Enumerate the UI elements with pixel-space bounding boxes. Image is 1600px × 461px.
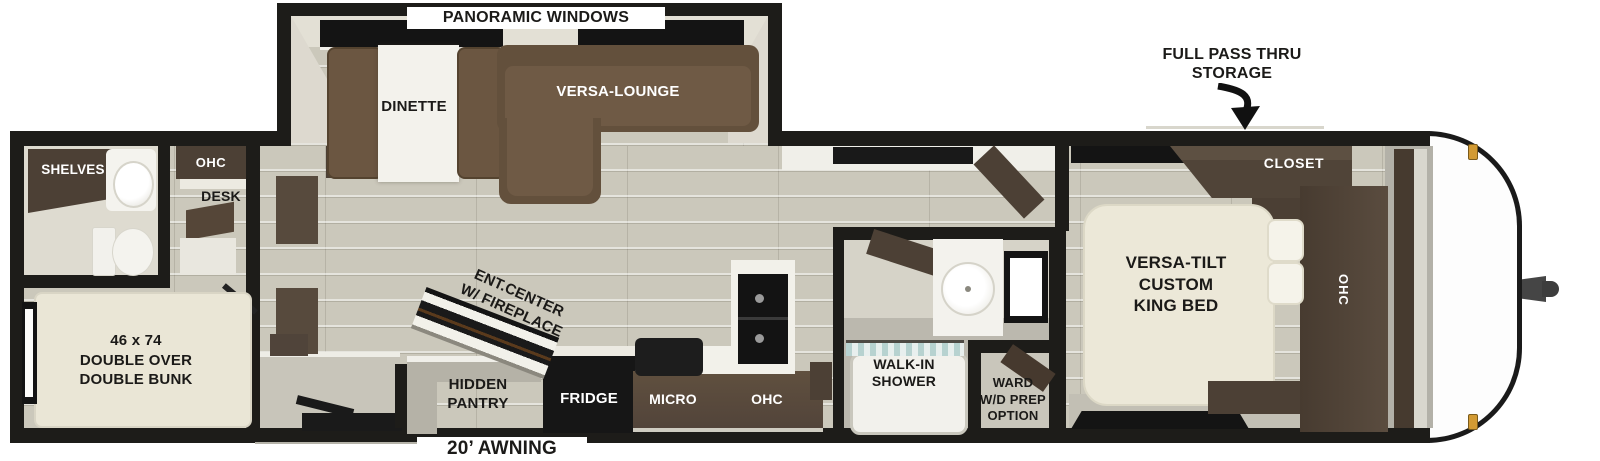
- marker-light-top: [1468, 144, 1478, 160]
- rear-bath-right-wall: [158, 131, 170, 287]
- versa-lounge-label: VERSA-LOUNGE: [542, 83, 694, 102]
- front-cap: [1424, 131, 1522, 443]
- kitchen-side-cabinet: [810, 362, 832, 400]
- pass-thru-inner-strip: [1414, 149, 1427, 428]
- sink-drain: [965, 286, 971, 292]
- shower-glass: [846, 340, 964, 356]
- micro-label: MICRO: [628, 391, 718, 409]
- versa-lounge-chaise-seat: [507, 118, 593, 196]
- burner-knob-1: [755, 294, 764, 303]
- bedroom-ohc-label-wrap: OHC: [1322, 268, 1366, 312]
- awning-label: 20’ AWNING: [417, 437, 587, 461]
- bunk-window-glass: [25, 309, 33, 397]
- bathroom-sink: [941, 262, 995, 316]
- bedroom-divider-upper: [1055, 131, 1069, 231]
- cooktop: [738, 274, 788, 364]
- bedroom-ohc-label: OHC: [1337, 274, 1352, 306]
- dinette-label: DINETTE: [366, 98, 462, 117]
- wall-cabinet-1: [276, 176, 318, 244]
- pantry-wall-black: [395, 364, 407, 428]
- ward-label: WARD W/D PREP OPTION: [972, 375, 1054, 425]
- shelves-label: SHELVES: [28, 162, 118, 179]
- desk-label: DESK: [192, 188, 250, 206]
- rv-floorplan: SHELVES OHC DESK 46 x 74 DOUBLE OVER DOU…: [0, 0, 1600, 461]
- marker-light-bottom: [1468, 414, 1478, 430]
- hidden-pantry-label: HIDDEN PANTRY: [426, 375, 530, 413]
- walk-in-shower-label: WALK-IN SHOWER: [845, 356, 963, 390]
- hitch-coupler: [1542, 281, 1559, 297]
- bathroom-window-glass: [1010, 258, 1042, 316]
- cooktop-divider: [738, 317, 788, 320]
- bathroom-left-wall: [833, 227, 844, 441]
- rear-bath-bottom-wall: [10, 275, 170, 288]
- closet-label: CLOSET: [1248, 155, 1340, 173]
- panoramic-windows-label: PANORAMIC WINDOWS: [407, 7, 665, 29]
- desk-body: [180, 238, 236, 275]
- bedroom-dresser: [1208, 381, 1300, 414]
- burner-knob-2: [755, 334, 764, 343]
- entry-side-cabinet: [270, 334, 308, 356]
- full-pass-thru-label: FULL PASS THRU STORAGE: [1132, 45, 1332, 83]
- pillow-2: [1267, 262, 1304, 305]
- microwave: [635, 338, 703, 376]
- pass-thru-arrow-icon: [1210, 83, 1276, 131]
- ceiling-vent: [833, 147, 973, 164]
- desk-ohc-label: OHC: [196, 155, 226, 170]
- rear-bath-sink-bowl: [113, 161, 154, 208]
- desk-ohc-cabinet: OHC: [176, 146, 246, 179]
- pillow-1: [1267, 219, 1304, 262]
- king-bed-label: VERSA-TILT CUSTOM KING BED: [1090, 252, 1262, 317]
- bunk-label: 46 x 74 DOUBLE OVER DOUBLE BUNK: [38, 331, 234, 390]
- kitchen-ohc-label: OHC: [722, 391, 812, 409]
- fridge-label: FRIDGE: [543, 390, 635, 409]
- pass-thru-storage-strip: [1394, 149, 1414, 428]
- toilet-bowl: [112, 228, 154, 276]
